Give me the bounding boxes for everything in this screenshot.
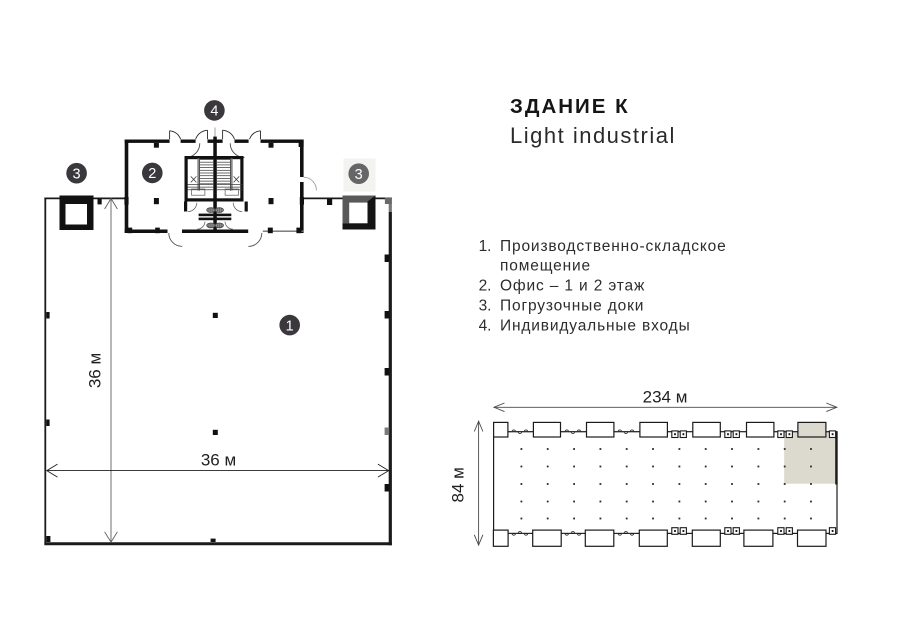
svg-text:Light industrial: Light industrial — [510, 123, 676, 148]
svg-text:84 м: 84 м — [449, 467, 468, 502]
svg-text:1: 1 — [286, 318, 294, 334]
svg-text:3.: 3. — [479, 298, 492, 315]
svg-text:36 м: 36 м — [86, 353, 105, 388]
svg-text:Погрузочные доки: Погрузочные доки — [500, 298, 644, 315]
svg-text:Офис – 1 и 2 этаж: Офис – 1 и 2 этаж — [500, 278, 645, 295]
svg-text:2: 2 — [148, 166, 156, 182]
svg-text:ЗДАНИЕ К: ЗДАНИЕ К — [510, 95, 630, 118]
svg-text:4.: 4. — [479, 318, 492, 335]
svg-text:4: 4 — [210, 104, 218, 120]
svg-text:3: 3 — [355, 167, 363, 183]
svg-text:36 м: 36 м — [201, 451, 236, 470]
svg-text:помещение: помещение — [500, 258, 591, 275]
svg-text:Производственно-складское: Производственно-складское — [500, 238, 727, 255]
svg-text:2.: 2. — [479, 278, 492, 295]
svg-text:Индивидуальные входы: Индивидуальные входы — [500, 318, 691, 335]
svg-text:1.: 1. — [479, 238, 492, 255]
svg-text:3: 3 — [73, 166, 81, 182]
svg-text:234 м: 234 м — [643, 388, 688, 407]
